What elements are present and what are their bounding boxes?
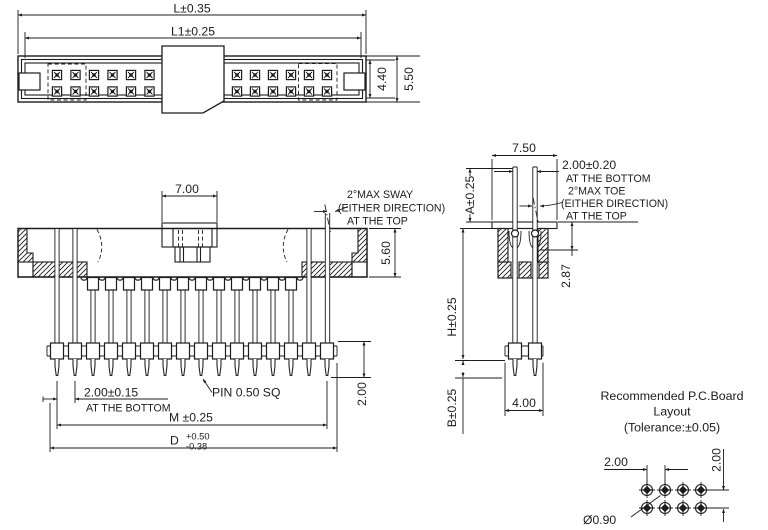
key-notch-right — [344, 73, 365, 90]
dim-label-L: L±0.35 — [173, 2, 210, 16]
dim-label-M: M ±0.25 — [169, 411, 213, 425]
top-view-pins-right — [232, 70, 331, 96]
toe-note-line2: (EITHER DIRECTION) — [561, 198, 668, 210]
front-view: 7.00 5.60 2°MAX SWAY (EITHER DIRECTION) … — [18, 182, 445, 452]
front-wall-right — [352, 229, 367, 263]
dim-label-7-50: 7.50 — [512, 141, 536, 155]
dim-label-5-50: 5.50 — [402, 67, 416, 91]
dim-label-tail: 2.00 — [355, 382, 369, 406]
dim-label-7-00: 7.00 — [175, 182, 199, 196]
dim-label-pitch: 2.00±0.15 — [84, 386, 138, 400]
top-view: L±0.35 L1±0.25 4.40 5.50 — [18, 2, 420, 114]
dim-label-L1: L1±0.25 — [171, 25, 215, 39]
front-pins — [55, 205, 331, 344]
sway-note-line1: 2°MAX SWAY — [347, 189, 413, 201]
sway-note-line3: AT THE TOP — [347, 216, 408, 228]
dim-label-A: A±0.25 — [463, 176, 477, 215]
dim-label-H: H±0.25 — [445, 297, 459, 336]
dim-label-row-pitch: 2.00±0.20 — [562, 158, 616, 172]
pin-size-note: PIN 0.50 SQ — [212, 386, 280, 400]
pcb-title-line1: Recommended P.C.Board — [600, 389, 743, 403]
front-wall-left — [18, 229, 33, 263]
dim-label-D: D — [170, 434, 179, 448]
key-notch-left — [19, 73, 40, 90]
front-foot-left — [33, 262, 87, 277]
dim-note-pitch: AT THE BOTTOM — [86, 403, 171, 415]
dim-label-2-87: 2.87 — [559, 264, 573, 288]
toe-note-line1: 2°MAX TOE — [568, 186, 625, 198]
dim-label-D-plus: +0.50 — [186, 432, 210, 442]
dim-label-D-minus: -0.38 — [186, 442, 207, 452]
row-pitch-note: AT THE BOTTOM — [566, 173, 651, 185]
pcb-title-line3: (Tolerance:±0.05) — [624, 421, 720, 435]
pcb-dim-pitch-x: 2.00 — [604, 455, 628, 469]
side-top-plate — [492, 222, 557, 229]
sway-note-line2: (EITHER DIRECTION) — [338, 203, 445, 215]
pcb-layout: Recommended P.C.Board Layout (Tolerance:… — [583, 389, 744, 527]
dim-label-5-60: 5.60 — [379, 241, 393, 265]
connector-engineering-drawing: L±0.35 L1±0.25 4.40 5.50 — [0, 0, 768, 530]
pcb-title-line2: Layout — [653, 405, 691, 419]
center-cap-block — [162, 46, 224, 113]
top-view-pins-left — [52, 70, 154, 96]
toe-note-line3: AT THE TOP — [566, 211, 627, 223]
side-pins — [512, 167, 539, 343]
dim-label-4-00: 4.00 — [512, 396, 536, 410]
dim-label-4-40: 4.40 — [375, 67, 389, 91]
dim-label-B: B±0.25 — [445, 389, 459, 428]
drawing-canvas: L±0.35 L1±0.25 4.40 5.50 — [0, 0, 768, 530]
front-pin-collars — [51, 343, 334, 376]
pcb-hole-dia: Ø0.90 — [583, 513, 616, 527]
pcb-dim-pitch-y: 2.00 — [710, 448, 724, 472]
pcb-holes — [639, 482, 709, 516]
